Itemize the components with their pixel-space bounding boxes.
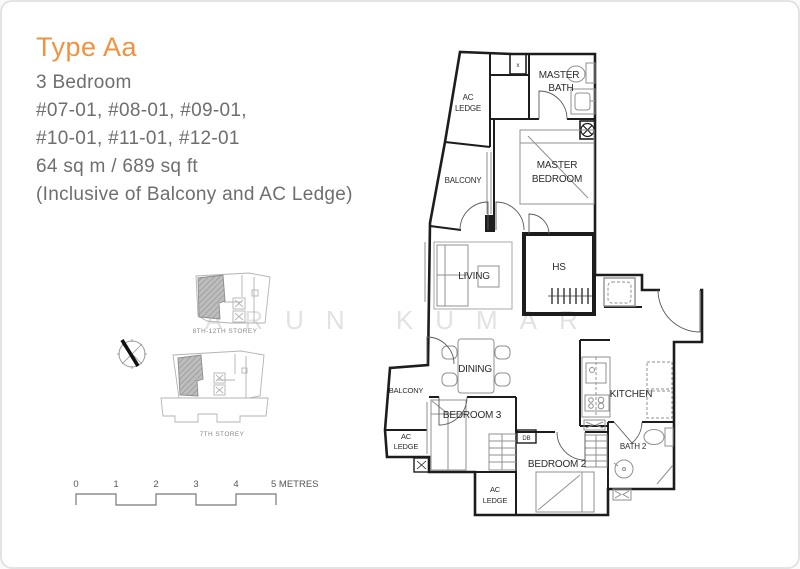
- keyplan-upper-label: 8TH-12TH STOREY: [193, 328, 258, 335]
- hs-vent-hatch-icon: [548, 288, 592, 304]
- master-bath-label-2: BATH: [548, 83, 573, 94]
- bath2-sink-icon: [614, 460, 633, 478]
- ac-ledge-bottom-label-2: LEDGE: [483, 496, 508, 505]
- ac-ledge-bottom-label-1: AC: [490, 485, 501, 494]
- master-bath-door: [539, 91, 567, 119]
- scale-tick-2: 2: [153, 479, 158, 490]
- highlighted-unit-upper: [198, 275, 225, 319]
- keyplan-upper: 8TH-12TH STOREY: [193, 273, 270, 335]
- page-title: Type Aa: [36, 32, 137, 63]
- master-bedroom-label-1: MASTER: [537, 160, 577, 171]
- living-label: LIVING: [458, 271, 490, 282]
- scale-tick-0: 0: [73, 479, 78, 490]
- bedroom2-bed-icon: [536, 472, 594, 512]
- master-bedroom-label-2: BEDROOM: [532, 174, 582, 185]
- duct-x-label: x: [517, 63, 520, 69]
- kitchen-counter-icon: [582, 357, 610, 417]
- ac-ledge-left-label-1: AC: [401, 432, 412, 441]
- highlighted-unit-lower: [178, 355, 203, 396]
- bedroom2-door: [557, 432, 585, 460]
- shower-screen-icon: [657, 465, 673, 484]
- bath2-toilet-icon: [644, 428, 673, 446]
- household-shelter: [524, 234, 594, 314]
- unit-type-line: 3 Bedroom: [36, 72, 132, 94]
- corner-meter-box-icon: [414, 458, 429, 472]
- bedroom3-label: BEDROOM 3: [443, 410, 502, 421]
- hs-door: [529, 214, 549, 234]
- entrance-door: [658, 290, 700, 332]
- balcony-lower-label: BALCONY: [389, 386, 424, 395]
- scale-bar: 0 1 2 3 4 5 METRES: [73, 479, 318, 505]
- db-label: DB: [522, 436, 530, 442]
- unit-numbers-line-1: #07-01, #08-01, #09-01,: [36, 100, 247, 122]
- bedroom2-wardrobe-icon: [585, 435, 607, 467]
- keyplan-lower: 7TH STOREY: [161, 351, 268, 438]
- dining-label: DINING: [458, 364, 492, 375]
- floorplan-page: Type Aa 3 Bedroom #07-01, #08-01, #09-01…: [0, 0, 800, 569]
- ac-ledge-left-label-2: LEDGE: [394, 442, 419, 451]
- scale-tick-4: 4: [233, 479, 238, 490]
- bedroom3-wardrobe-icon: [489, 434, 516, 470]
- balcony-upper-label: BALCONY: [445, 176, 483, 185]
- ac-ledge-top-label-1: AC: [463, 93, 474, 102]
- outer-walls: [385, 52, 702, 515]
- master-bedroom-door: [496, 202, 524, 230]
- bedroom2-label: BEDROOM 2: [528, 459, 587, 470]
- area-note-line: (Inclusive of Balcony and AC Ledge): [36, 184, 353, 206]
- master-bath-label-1: MASTER: [539, 70, 579, 81]
- scale-tick-1: 1: [113, 479, 118, 490]
- compass-icon: [117, 339, 147, 369]
- unit-numbers-line-2: #10-01, #11-01, #12-01: [36, 128, 240, 150]
- scale-end-label: 5 METRES: [271, 479, 319, 490]
- master-vanity-icon: [571, 89, 595, 114]
- hs-label: HS: [552, 262, 566, 273]
- scale-tick-3: 3: [193, 479, 198, 490]
- area-line: 64 sq m / 689 sq ft: [36, 156, 198, 178]
- balcony-upper-door: [460, 202, 488, 230]
- ac-ledge-top-label-2: LEDGE: [455, 104, 481, 113]
- kitchen-label: KITCHEN: [610, 389, 653, 400]
- bath2-door: [614, 422, 642, 443]
- vent-box-bath-icon: [613, 489, 631, 500]
- washer-icon: [604, 278, 635, 306]
- keyplan-lower-label: 7TH STOREY: [200, 431, 245, 438]
- balcony-lower-door: [427, 337, 454, 364]
- bath2-label: BATH 2: [620, 442, 647, 451]
